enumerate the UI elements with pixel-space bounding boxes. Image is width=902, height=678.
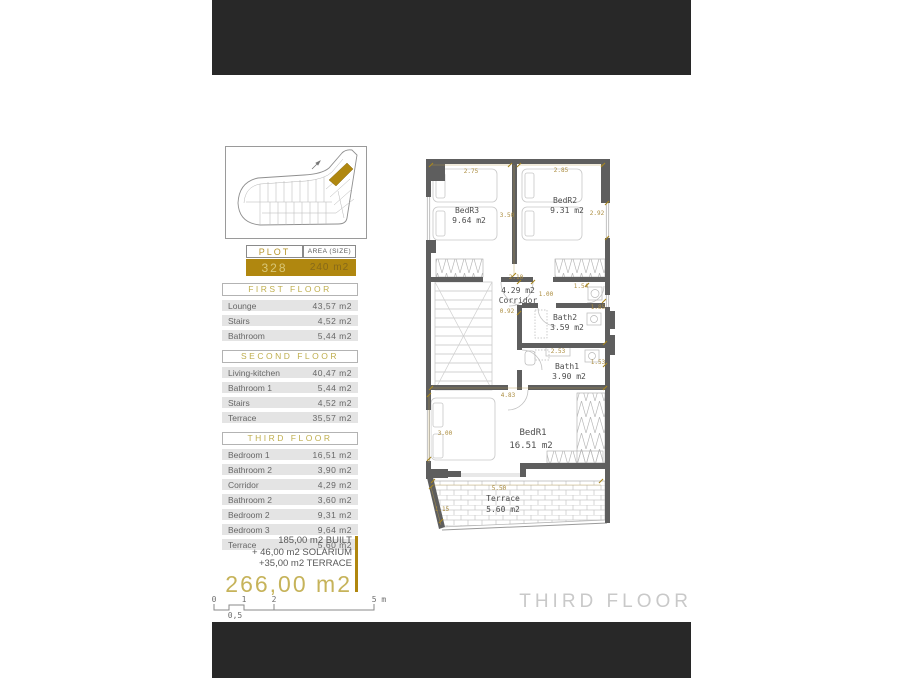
dim-bedr3-depth: 3.50 <box>500 212 515 219</box>
plot-number: 328 <box>246 259 303 276</box>
floor-plan: 2.75 2.85 3.50 2.92 2.10 1.00 1.54 0.92 … <box>415 145 625 545</box>
first-floor-section: FIRST FLOOR Lounge43,57 m2 Stairs4,52 m2… <box>222 283 358 341</box>
floor-tables: FIRST FLOOR Lounge43,57 m2 Stairs4,52 m2… <box>222 283 358 559</box>
dim-bath1-depth: 1.53 <box>591 359 606 366</box>
second-floor-section: SECOND FLOOR Living-kitchen40,47 m2 Bath… <box>222 350 358 423</box>
row-value: 4,52 m2 <box>318 398 352 408</box>
dim-bedr1-depth: 3.00 <box>438 430 453 437</box>
section-title: THIRD FLOOR <box>222 432 358 445</box>
row-label: Corridor <box>228 480 259 490</box>
bedr2-area: 9.31 m2 <box>550 206 584 215</box>
bedr3-area: 9.64 m2 <box>452 216 486 225</box>
row-label: Bathroom 1 <box>228 383 272 393</box>
floor-plan-drawing: 2.75 2.85 3.50 2.92 2.10 1.00 1.54 0.92 … <box>415 145 625 545</box>
table-row: Corridor4,29 m2 <box>222 479 358 490</box>
top-banner <box>212 0 691 75</box>
bath1-area: 3.90 m2 <box>552 372 586 381</box>
dim-bedr3-width: 2.75 <box>464 168 479 175</box>
bath1-label: Bath1 <box>555 362 579 371</box>
built-area: 185,00 m2 BUILT <box>210 535 352 547</box>
bottom-banner <box>212 622 691 678</box>
table-row: Stairs4,52 m2 <box>222 315 358 326</box>
row-label: Bedroom 1 <box>228 450 270 460</box>
floor-title: THIRD FLOOR <box>480 591 692 613</box>
plot-area-value: 240 m2 <box>303 259 356 276</box>
section-title: SECOND FLOOR <box>222 350 358 363</box>
scale-0: 0 <box>212 595 217 604</box>
dim-bath2-depth: 1.85 <box>591 304 606 311</box>
row-label: Stairs <box>228 398 250 408</box>
table-row: Bedroom 116,51 m2 <box>222 449 358 460</box>
bedr2-label: BedR2 <box>553 196 577 205</box>
row-value: 3,60 m2 <box>318 495 352 505</box>
site-plan-drawing <box>226 147 364 236</box>
scale-5m: 5 m <box>372 595 387 604</box>
area-summary: 185,00 m2 BUILT + 46,00 m2 SOLARIUM +35,… <box>210 535 352 597</box>
row-label: Bedroom 3 <box>228 525 270 535</box>
table-row: Bathroom 23,60 m2 <box>222 494 358 505</box>
table-row: Bedroom 29,31 m2 <box>222 509 358 520</box>
terrace-deck <box>431 481 605 527</box>
dim-bedr2-width: 2.85 <box>554 167 569 174</box>
dim-terrace-width: 5.50 <box>492 485 507 492</box>
row-value: 9,64 m2 <box>318 525 352 535</box>
bedr1-area: 16.51 m2 <box>509 441 552 451</box>
terrace-area: +35,00 m2 TERRACE <box>210 558 352 570</box>
site-plan <box>225 146 367 239</box>
scale-0-5: 0,5 <box>228 611 243 620</box>
dim-niche: 1.54 <box>574 283 589 290</box>
table-row: Bathroom 15,44 m2 <box>222 382 358 393</box>
row-value: 5,44 m2 <box>318 383 352 393</box>
row-value: 16,51 m2 <box>313 450 352 460</box>
row-label: Terrace <box>228 413 256 423</box>
table-row: Lounge43,57 m2 <box>222 300 358 311</box>
section-title: FIRST FLOOR <box>222 283 358 296</box>
row-label: Bathroom <box>228 331 265 341</box>
total-area: 266,00 m2 <box>210 571 352 597</box>
row-label: Bathroom 2 <box>228 495 272 505</box>
summary-accent-bar <box>355 536 358 592</box>
row-label: Lounge <box>228 301 256 311</box>
dim-corridor-width: 2.10 <box>509 274 524 281</box>
table-row: Stairs4,52 m2 <box>222 397 358 408</box>
bedr3-label: BedR3 <box>455 206 479 215</box>
dim-corridor-2: 0.92 <box>500 308 515 315</box>
corridor-label: Corridor <box>499 296 538 305</box>
north-arrow-icon <box>312 161 320 169</box>
bedr1-label: BedR1 <box>519 428 546 438</box>
row-value: 4,29 m2 <box>318 480 352 490</box>
row-label: Stairs <box>228 316 250 326</box>
area-header: AREA (SIZE) <box>303 245 356 258</box>
table-row: Terrace35,57 m2 <box>222 412 358 423</box>
table-row: Living-kitchen40,47 m2 <box>222 367 358 378</box>
solarium-area: + 46,00 m2 SOLARIUM <box>210 547 352 559</box>
stairs <box>435 282 492 390</box>
terrace-area: 5.60 m2 <box>486 505 520 514</box>
scale-2: 2 <box>272 595 277 604</box>
table-row: Bathroom5,44 m2 <box>222 330 358 341</box>
table-row: Bathroom 23,90 m2 <box>222 464 358 475</box>
highlighted-plot <box>329 163 353 186</box>
floorplan-sheet: PLOT AREA (SIZE) 328 240 m2 FIRST FLOOR … <box>0 0 902 678</box>
row-label: Bedroom 2 <box>228 510 270 520</box>
dim-corridor-1: 1.00 <box>539 291 554 298</box>
terrace-label: Terrace <box>486 494 520 503</box>
corridor-area: 4.29 m2 <box>501 286 535 295</box>
plot-header: PLOT <box>246 245 303 258</box>
bath2-label: Bath2 <box>553 313 577 322</box>
scale-bar: 0 1 2 5 m 0,5 <box>210 594 390 620</box>
row-value: 4,52 m2 <box>318 316 352 326</box>
scale-1: 1 <box>242 595 247 604</box>
third-floor-section: THIRD FLOOR Bedroom 116,51 m2 Bathroom 2… <box>222 432 358 550</box>
row-label: Living-kitchen <box>228 368 280 378</box>
row-value: 3,90 m2 <box>318 465 352 475</box>
plot-table: PLOT AREA (SIZE) 328 240 m2 <box>246 245 356 276</box>
row-value: 35,57 m2 <box>313 413 352 423</box>
row-value: 5,44 m2 <box>318 331 352 341</box>
dim-bedr1-width: 4.83 <box>501 392 516 399</box>
row-value: 40,47 m2 <box>313 368 352 378</box>
row-label: Bathroom 2 <box>228 465 272 475</box>
dim-shower: 2.53 <box>551 348 566 355</box>
bath2-area: 3.59 m2 <box>550 323 584 332</box>
row-value: 43,57 m2 <box>313 301 352 311</box>
dim-terrace-left: 1.15 <box>435 506 450 513</box>
row-value: 9,31 m2 <box>318 510 352 520</box>
dim-bedr2-depth: 2.92 <box>590 210 605 217</box>
table-row: Bedroom 39,64 m2 <box>222 524 358 535</box>
